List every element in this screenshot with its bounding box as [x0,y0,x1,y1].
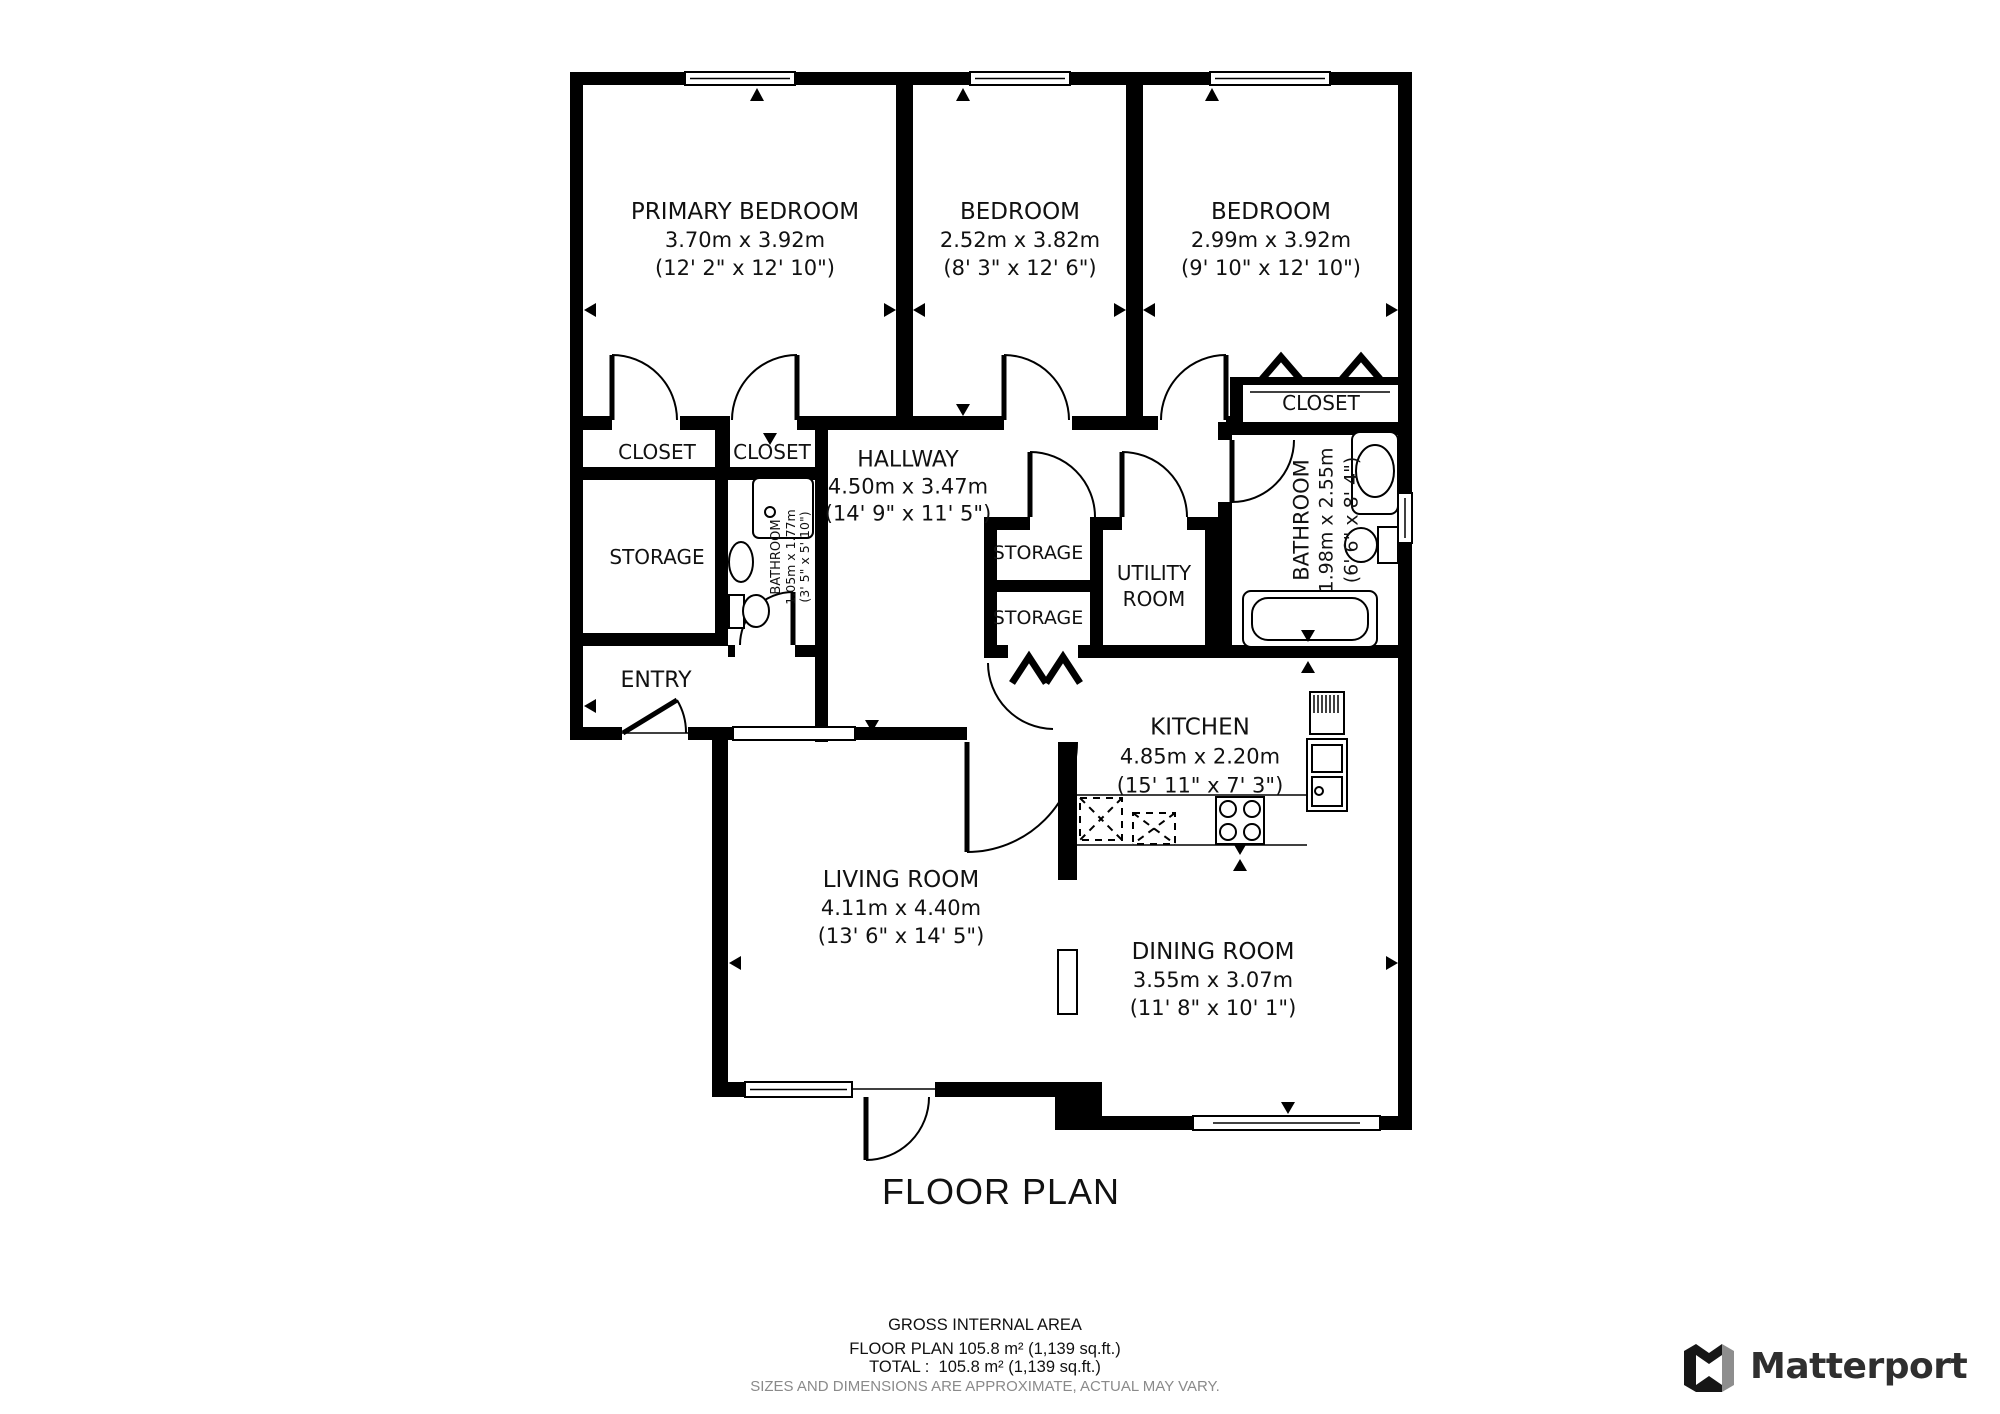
room-label-storage-left: STORAGE [609,546,704,568]
room-dim-imperial: (8' 3" x 12' 6") [940,254,1100,282]
hall-toilet-tank [729,595,744,628]
room-name: PRIMARY BEDROOM [631,198,859,226]
room-label-closet-3: CLOSET [1282,392,1360,414]
room-dim-imperial: (11' 8" x 10' 1") [1130,994,1297,1022]
room-label-storage-1: STORAGE [993,542,1083,564]
room-label-primary-bedroom: PRIMARY BEDROOM 3.70m x 3.92m (12' 2" x … [631,198,859,282]
main-toilet-tank [1378,527,1398,563]
room-dim-metric: 4.50m x 3.47m [825,474,992,501]
room-dim-imperial: (13' 6" x 14' 5") [818,922,985,950]
radiator [1058,950,1077,1014]
kitchen-counter-lines [1077,795,1307,845]
gross-internal-area-heading: GROSS INTERNAL AREA [750,1316,1220,1334]
room-name: LIVING ROOM [818,866,985,894]
hall-toilet-bowl [743,595,769,627]
room-label-kitchen: KITCHEN 4.85m x 2.20m (15' 11" x 7' 3") [1117,714,1284,801]
fridge [1310,692,1344,734]
room-label-storage-2: STORAGE [993,607,1083,629]
room-dim-metric: 4.11m x 4.40m [818,894,985,922]
room-label-bedroom-3: BEDROOM 2.99m x 3.92m (9' 10" x 12' 10") [1181,198,1361,282]
stove-burner [1244,801,1260,817]
stove-burner [1244,824,1260,840]
room-name: BEDROOM [1181,198,1361,226]
room-label-hall-bathroom: BATHROOM 1.05m x 1.77m (3' 5" x 5' 10") [770,509,812,604]
room-dim-metric: 2.52m x 3.82m [940,226,1100,254]
room-dim-metric: 3.55m x 3.07m [1130,966,1297,994]
matterport-logo-icon [1684,1344,1734,1392]
room-label-entry: ENTRY [620,670,691,692]
room-name: BATHROOM [1290,448,1315,593]
room-label-living-room: LIVING ROOM 4.11m x 4.40m (13' 6" x 14' … [818,866,985,950]
fridge-vents [1314,695,1338,713]
room-label-utility-room: UTILITY ROOM [1099,560,1209,612]
floor-plan-page: PRIMARY BEDROOM 3.70m x 3.92m (12' 2" x … [0,0,2000,1414]
room-dim-imperial: (3' 5" x 5' 10") [798,509,812,604]
room-dim-metric: 4.85m x 2.20m [1117,743,1284,772]
kitchen-sink-basin [1312,745,1342,772]
room-name: STORAGE [993,607,1083,629]
stove-burner [1220,824,1236,840]
room-dim-metric: 2.99m x 3.92m [1181,226,1361,254]
room-dim-imperial: (14' 9" x 11' 5") [825,501,992,528]
total-area: TOTAL : 105.8 m² (1,139 sq.ft.) [750,1358,1220,1376]
stove-burner [1220,801,1236,817]
room-name: CLOSET [1282,392,1360,414]
room-name: DINING ROOM [1130,938,1297,966]
room-label-bedroom-2: BEDROOM 2.52m x 3.82m (8' 3" x 12' 6") [940,198,1100,282]
hall-bathroom-sink [729,542,753,582]
area-summary: GROSS INTERNAL AREA FLOOR PLAN 105.8 m² … [750,1316,1220,1396]
room-dim-imperial: (6' 6" x 8' 4") [1340,448,1365,593]
room-label-closet-1: CLOSET [618,441,696,463]
kitchen-sink-drain [1315,787,1323,795]
room-label-main-bathroom: BATHROOM 1.98m x 2.55m (6' 6" x 8' 4") [1290,448,1365,593]
room-name: UTILITY ROOM [1099,560,1209,612]
room-label-dining-room: DINING ROOM 3.55m x 3.07m (11' 8" x 10' … [1130,938,1297,1022]
room-dim-metric: 1.05m x 1.77m [784,509,798,604]
page-title: FLOOR PLAN [882,1171,1120,1213]
disclaimer: SIZES AND DIMENSIONS ARE APPROXIMATE, AC… [750,1378,1220,1396]
room-dim-imperial: (15' 11" x 7' 3") [1117,772,1284,801]
room-name: HALLWAY [825,447,992,474]
room-name: CLOSET [733,441,811,463]
room-name: KITCHEN [1117,714,1284,743]
room-name: STORAGE [993,542,1083,564]
room-label-closet-2: CLOSET [733,441,811,463]
matterport-wordmark: Matterport [1750,1346,1967,1387]
room-dim-metric: 3.70m x 3.92m [631,226,859,254]
appliance-spaces-dashed [1080,798,1175,844]
room-name: ENTRY [620,670,691,692]
room-dim-imperial: (9' 10" x 12' 10") [1181,254,1361,282]
room-dim-imperial: (12' 2" x 12' 10") [631,254,859,282]
room-name: BEDROOM [940,198,1100,226]
room-name: CLOSET [618,441,696,463]
floor-plan-area: FLOOR PLAN 105.8 m² (1,139 sq.ft.) [750,1340,1220,1358]
room-dim-metric: 1.98m x 2.55m [1315,448,1340,593]
room-name: BATHROOM [770,509,784,604]
room-label-hallway: HALLWAY 4.50m x 3.47m (14' 9" x 11' 5") [825,447,992,528]
room-name: STORAGE [609,546,704,568]
